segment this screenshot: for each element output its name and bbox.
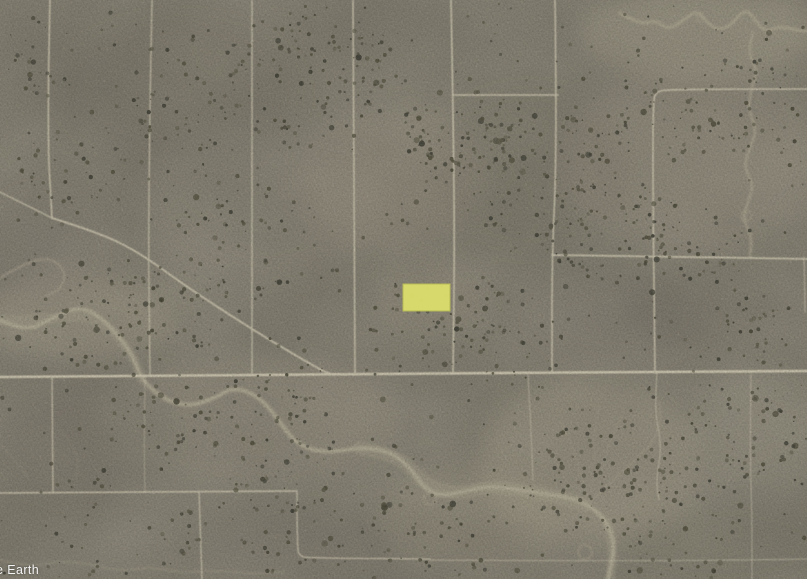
satellite-map[interactable]: e Earth — [0, 0, 807, 579]
aerial-imagery — [0, 0, 807, 579]
parcel-highlight — [403, 284, 450, 311]
